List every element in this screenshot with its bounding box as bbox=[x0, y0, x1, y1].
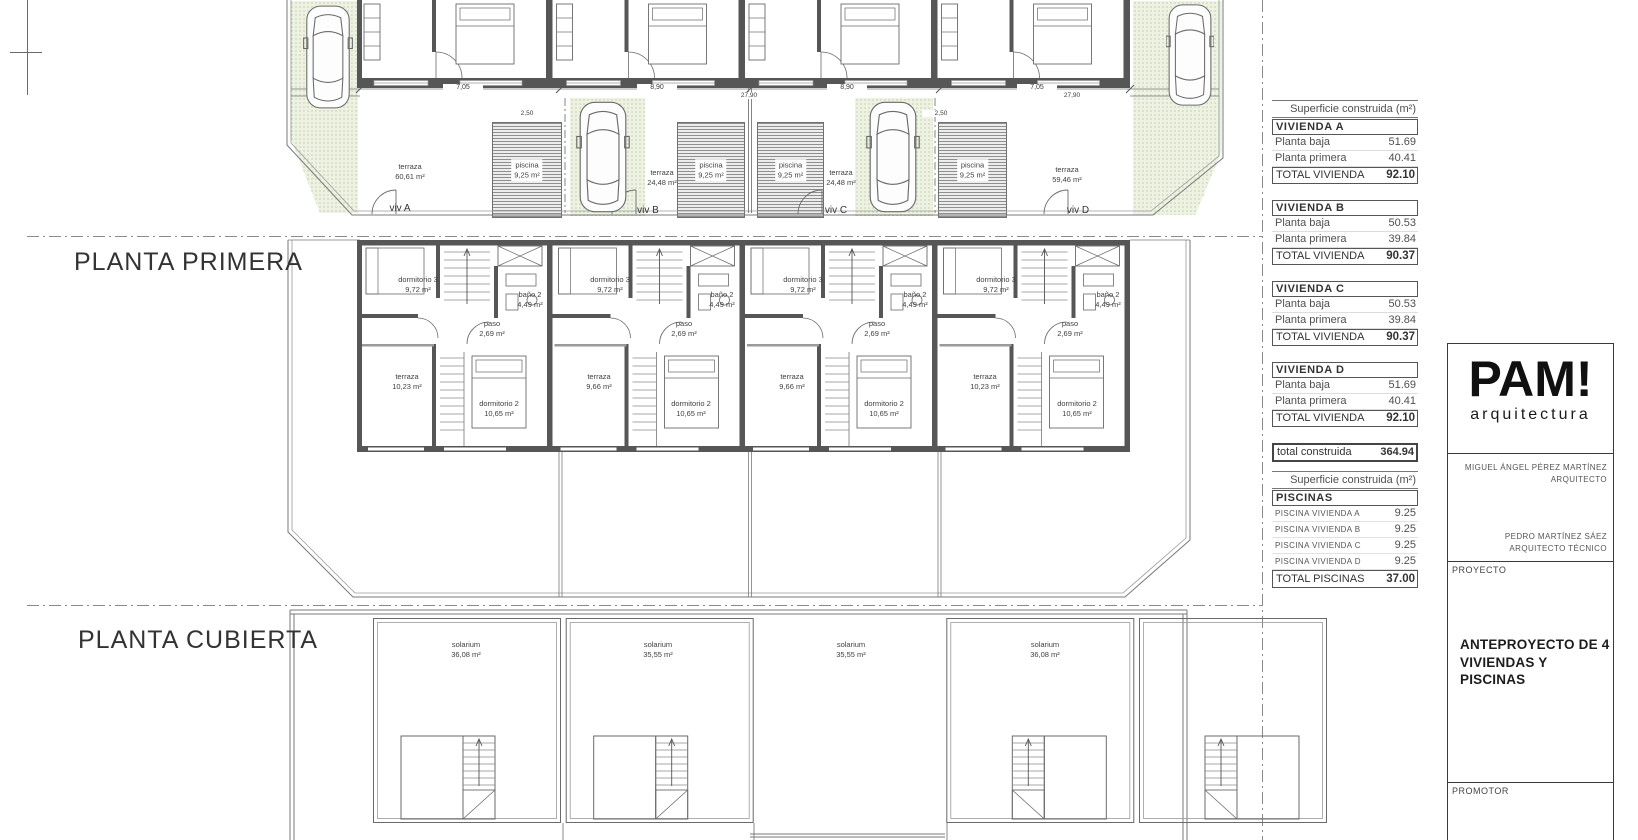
dormitorio3-label: dormitorio 39,72 m² bbox=[378, 275, 458, 295]
viv-d-label: viv D bbox=[1058, 204, 1098, 217]
terraza-label-c: terraza24,48 m² bbox=[796, 168, 886, 188]
row-value: 9.25 bbox=[1395, 506, 1416, 521]
group-title: VIVIENDA A bbox=[1272, 119, 1418, 135]
row-value: 39.84 bbox=[1388, 313, 1416, 328]
total-construida-row: total construida 364.94 bbox=[1272, 443, 1418, 462]
pam-logo-text: PAM! bbox=[1448, 354, 1613, 404]
row-value: 51.69 bbox=[1388, 135, 1416, 150]
total-label: TOTAL VIVIENDA bbox=[1276, 411, 1364, 426]
promotor-section: PROMOTOR bbox=[1448, 783, 1613, 840]
terraza-label-b: terraza24,48 m² bbox=[617, 168, 707, 188]
paso-label: paso2,69 m² bbox=[847, 319, 907, 339]
dim-27-90-right: 27,90 bbox=[1052, 92, 1092, 99]
dim-7-05-d: 7,05 bbox=[1017, 84, 1057, 91]
total-value: 90.37 bbox=[1386, 330, 1415, 345]
solarium-label-b: solarium35,55 m² bbox=[613, 640, 703, 660]
car-top-left bbox=[302, 4, 354, 110]
total-label: TOTAL VIVIENDA bbox=[1276, 330, 1364, 345]
planta-primera-title: PLANTA PRIMERA bbox=[74, 248, 303, 277]
studio-logo: PAM! arquitectura bbox=[1448, 354, 1613, 454]
technical-architect-name: PEDRO MARTÍNEZ SÁEZARQUITECTO TÉCNICO bbox=[1505, 531, 1607, 555]
total-label: TOTAL VIVIENDA bbox=[1276, 168, 1364, 183]
total-label: TOTAL VIVIENDA bbox=[1276, 249, 1364, 264]
group-title: VIVIENDA C bbox=[1272, 281, 1418, 297]
vivienda-b-group: VIVIENDA B Planta baja50.53 Planta prime… bbox=[1272, 200, 1418, 265]
solarium-label-c: solarium35,55 m² bbox=[806, 640, 896, 660]
dormitorio2-label: dormitorio 210,65 m² bbox=[651, 399, 731, 419]
paso-label: paso2,69 m² bbox=[1040, 319, 1100, 339]
total-value: 92.10 bbox=[1386, 168, 1415, 183]
row-label: Planta primera bbox=[1275, 313, 1347, 328]
dim-8-90-c: 8,90 bbox=[827, 84, 867, 91]
car-drive-b bbox=[576, 100, 630, 214]
row-label: Planta primera bbox=[1275, 232, 1347, 247]
proyecto-title: ANTEPROYECTO DE 4VIVIENDAS Y PISCINAS bbox=[1460, 636, 1613, 689]
bano2-label: baño 24,49 m² bbox=[500, 290, 560, 310]
proyecto-section: PROYECTO ANTEPROYECTO DE 4VIVIENDAS Y PI… bbox=[1448, 562, 1613, 783]
car-drive-c bbox=[866, 100, 920, 214]
row-value: 40.41 bbox=[1388, 394, 1416, 409]
total-value: 37.00 bbox=[1386, 571, 1415, 587]
piscinas-title: PISCINAS bbox=[1272, 490, 1418, 506]
superficies-piscinas-table: Superficie construida (m²) PISCINAS PISC… bbox=[1272, 471, 1418, 588]
terraza-label: terraza9,66 m² bbox=[564, 372, 634, 392]
vivienda-d-group: VIVIENDA D Planta baja51.69 Planta prime… bbox=[1272, 362, 1418, 427]
dormitorio3-label: dormitorio 39,72 m² bbox=[956, 275, 1036, 295]
bano2-label: baño 24,49 m² bbox=[692, 290, 752, 310]
viv-b-label: viv B bbox=[628, 204, 668, 217]
paso-label: paso2,69 m² bbox=[462, 319, 522, 339]
architectural-drawing-sheet: piscina9,25 m² piscina9,25 m² piscina9,2… bbox=[0, 0, 1638, 840]
title-block: PAM! arquitectura MIGUEL ÁNGEL PÉREZ MAR… bbox=[1447, 343, 1614, 840]
table-header: Superficie construida (m²) bbox=[1272, 471, 1418, 489]
row-label: Planta baja bbox=[1275, 378, 1330, 393]
row-value: 40.41 bbox=[1388, 151, 1416, 166]
architect-name: MIGUEL ÁNGEL PÉREZ MARTÍNEZARQUITECTO bbox=[1465, 462, 1607, 486]
dormitorio3-label: dormitorio 39,72 m² bbox=[570, 275, 650, 295]
bano2-label: baño 24,49 m² bbox=[885, 290, 945, 310]
row-value: 39.84 bbox=[1388, 232, 1416, 247]
terraza-label-d: terraza59,46 m² bbox=[1022, 165, 1112, 185]
dormitorio2-label: dormitorio 210,65 m² bbox=[1037, 399, 1117, 419]
row-label: Planta baja bbox=[1275, 297, 1330, 312]
pam-logo-subtext: arquitectura bbox=[1448, 406, 1613, 424]
dim-7-05-a: 7,05 bbox=[443, 84, 483, 91]
row-label: Planta baja bbox=[1275, 216, 1330, 231]
group-title: VIVIENDA B bbox=[1272, 200, 1418, 216]
dormitorio2-label: dormitorio 210,65 m² bbox=[459, 399, 539, 419]
viv-c-label: viv C bbox=[816, 204, 856, 217]
total-piscinas-row: TOTAL PISCINAS 37.00 bbox=[1272, 570, 1418, 588]
terraza-label: terraza9,66 m² bbox=[757, 372, 827, 392]
car-top-right bbox=[1166, 2, 1214, 108]
planta-cubierta-title: PLANTA CUBIERTA bbox=[78, 626, 318, 655]
row-value: 9.25 bbox=[1395, 554, 1416, 569]
row-value: 50.53 bbox=[1388, 216, 1416, 231]
solarium-label-d: solarium36,08 m² bbox=[1000, 640, 1090, 660]
terraza-label: terraza10,23 m² bbox=[372, 372, 442, 392]
row-value: 9.25 bbox=[1395, 538, 1416, 553]
vivienda-c-group: VIVIENDA C Planta baja50.53 Planta prime… bbox=[1272, 281, 1418, 346]
total-label: TOTAL PISCINAS bbox=[1276, 571, 1364, 587]
terraza-label: terraza10,23 m² bbox=[950, 372, 1020, 392]
paso-label: paso2,69 m² bbox=[654, 319, 714, 339]
row-label: PISCINA VIVIENDA D bbox=[1275, 554, 1361, 569]
table-header: Superficie construida (m²) bbox=[1272, 100, 1418, 118]
total-value: 92.10 bbox=[1386, 411, 1415, 426]
architects-section: MIGUEL ÁNGEL PÉREZ MARTÍNEZARQUITECTO PE… bbox=[1448, 454, 1613, 562]
dormitorio2-label: dormitorio 210,65 m² bbox=[844, 399, 924, 419]
vivienda-a-group: VIVIENDA A Planta baja51.69 Planta prime… bbox=[1272, 119, 1418, 184]
grand-label: total construida bbox=[1277, 445, 1352, 460]
total-value: 90.37 bbox=[1386, 249, 1415, 264]
dim-8-90-b: 8,90 bbox=[637, 84, 677, 91]
terraza-label-a: terraza60,61 m² bbox=[365, 162, 455, 182]
row-label: PISCINA VIVIENDA B bbox=[1275, 522, 1360, 537]
row-label: Planta primera bbox=[1275, 151, 1347, 166]
dormitorio3-label: dormitorio 39,72 m² bbox=[763, 275, 843, 295]
bano2-label: baño 24,49 m² bbox=[1078, 290, 1138, 310]
group-title: VIVIENDA D bbox=[1272, 362, 1418, 378]
dim-2-50-d: 2,50 bbox=[922, 110, 960, 117]
dim-27-90-left: 27,90 bbox=[729, 92, 769, 99]
viv-a-label: viv A bbox=[380, 202, 420, 215]
row-value: 51.69 bbox=[1388, 378, 1416, 393]
superficies-viviendas-table: Superficie construida (m²) VIVIENDA A Pl… bbox=[1272, 100, 1418, 462]
row-label: PISCINA VIVIENDA A bbox=[1275, 506, 1360, 521]
row-value: 50.53 bbox=[1388, 297, 1416, 312]
dim-2-50-a: 2,50 bbox=[508, 110, 546, 117]
solarium-label-a: solarium36,08 m² bbox=[421, 640, 511, 660]
row-label: Planta baja bbox=[1275, 135, 1330, 150]
row-value: 9.25 bbox=[1395, 522, 1416, 537]
row-label: Planta primera bbox=[1275, 394, 1347, 409]
row-label: PISCINA VIVIENDA C bbox=[1275, 538, 1361, 553]
promotor-label: PROMOTOR bbox=[1452, 786, 1509, 796]
grand-value: 364.94 bbox=[1380, 445, 1414, 460]
proyecto-label: PROYECTO bbox=[1452, 565, 1506, 575]
